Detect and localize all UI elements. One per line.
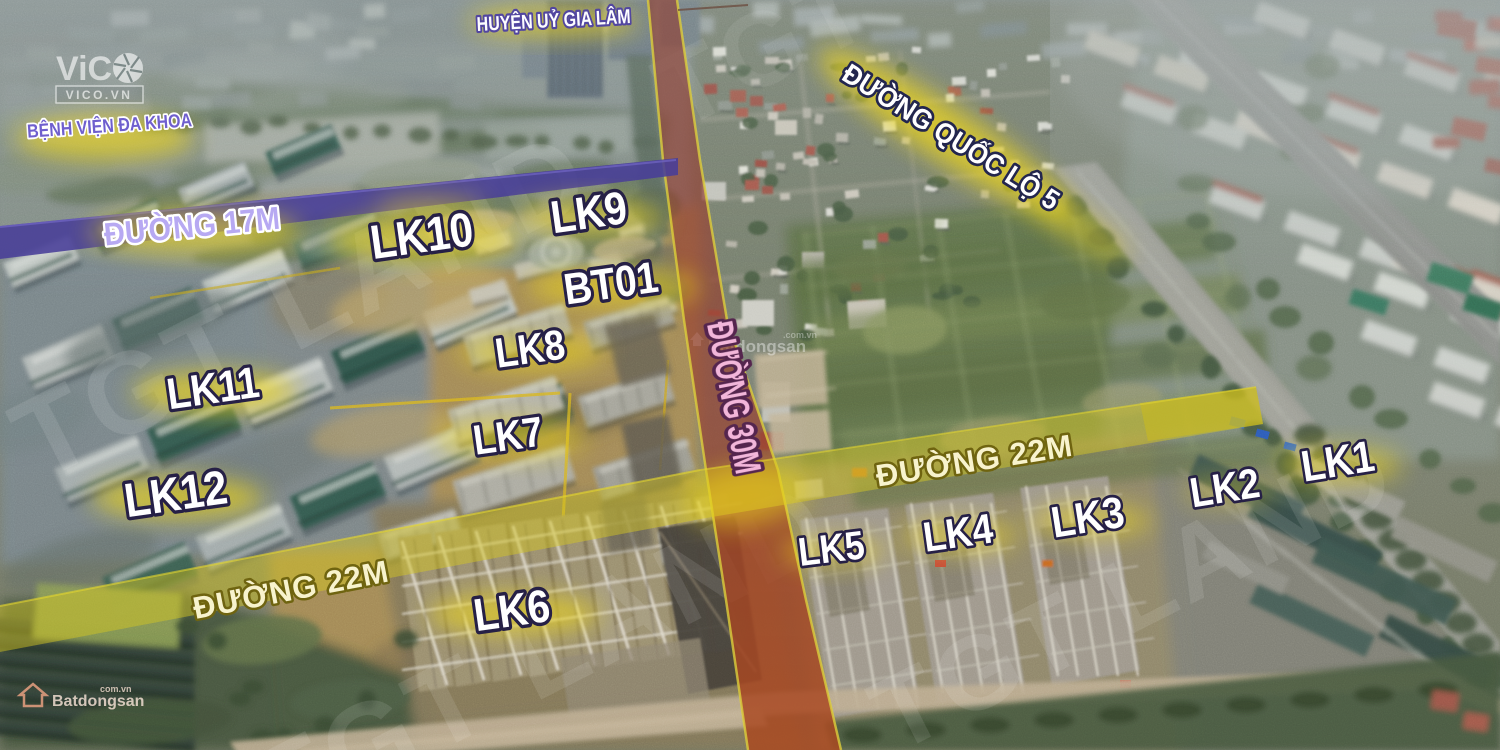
svg-text:LK6: LK6 [471,581,554,642]
svg-text:LK7: LK7 [470,408,546,464]
svg-text:.com.vn: .com.vn [783,330,817,340]
svg-text:VICO.VN: VICO.VN [66,88,133,102]
svg-text:LK4: LK4 [920,505,996,561]
svg-text:LK9: LK9 [548,183,631,244]
svg-text:Batdongsan: Batdongsan [52,693,144,710]
svg-text:com.vn: com.vn [100,684,132,694]
svg-text:LK5: LK5 [796,522,867,574]
svg-text:ViC: ViC [56,50,112,88]
svg-text:LK8: LK8 [492,321,568,377]
